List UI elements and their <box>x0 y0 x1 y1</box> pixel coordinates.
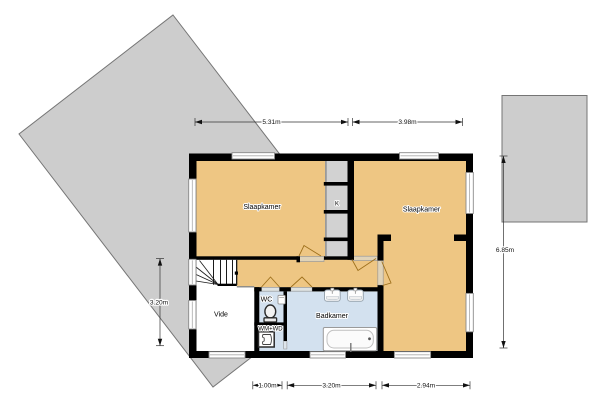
svg-text:5.31m: 5.31m <box>262 119 281 126</box>
svg-text:WM+WD: WM+WD <box>258 327 283 333</box>
svg-text:3.20m: 3.20m <box>150 300 169 307</box>
svg-text:K: K <box>335 202 339 208</box>
svg-text:6.85m: 6.85m <box>496 247 515 254</box>
svg-text:2.94m: 2.94m <box>417 382 436 389</box>
svg-text:Badkamer: Badkamer <box>316 313 349 320</box>
svg-text:Slaapkamer: Slaapkamer <box>403 207 441 214</box>
svg-text:WC: WC <box>261 296 273 303</box>
svg-text:Slaapkamer: Slaapkamer <box>243 204 281 211</box>
svg-text:1.00m: 1.00m <box>258 382 277 389</box>
svg-text:Vide: Vide <box>214 312 228 319</box>
svg-text:3.20m: 3.20m <box>322 382 341 389</box>
svg-text:3.98m: 3.98m <box>398 119 417 126</box>
